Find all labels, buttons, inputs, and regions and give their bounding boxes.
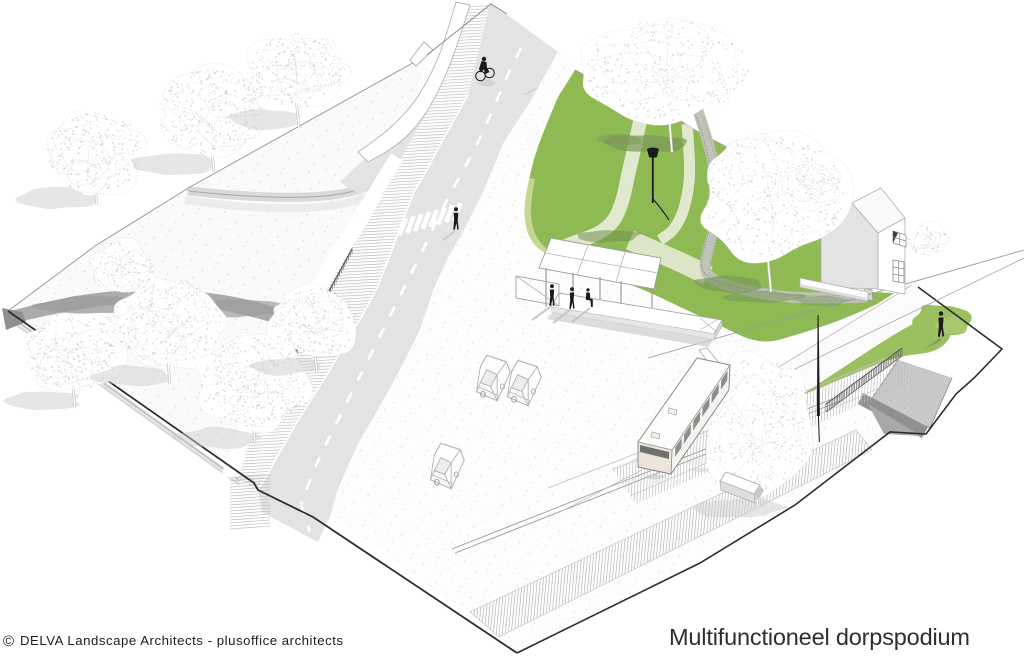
svg-text:Multifunctioneel dorpspodium: Multifunctioneel dorpspodium (669, 624, 970, 650)
svg-text:DELVA Landscape Architects - p: DELVA Landscape Architects - plusoffice … (20, 633, 343, 648)
svg-text:©: © (3, 633, 14, 650)
